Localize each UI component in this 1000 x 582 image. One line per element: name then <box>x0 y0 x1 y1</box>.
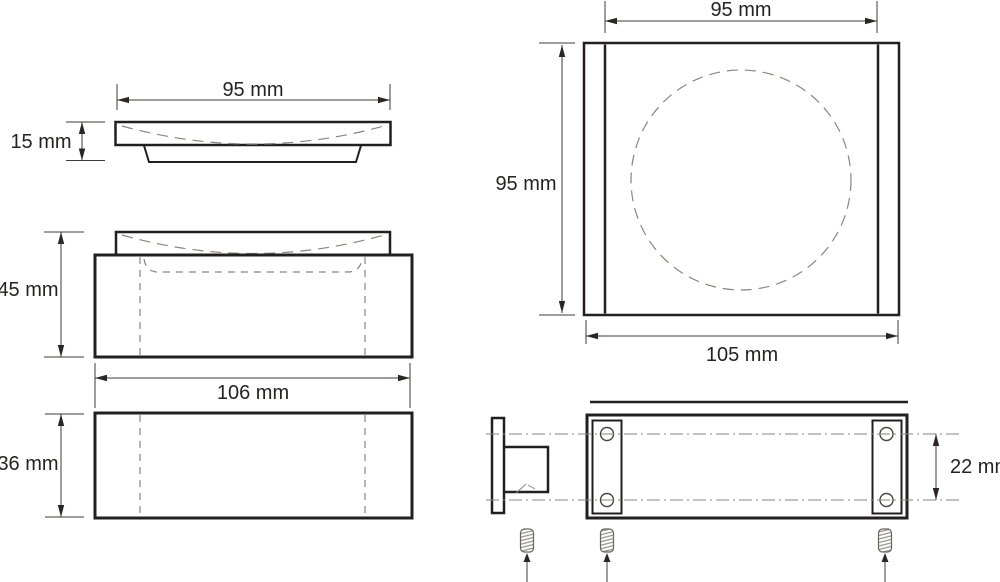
dimension-top-depth: 95 mm <box>495 43 575 315</box>
base-side-view: 36 mm <box>0 413 412 518</box>
drawing-canvas: 95 mm 15 mm 45 mm 106 mm <box>0 0 1000 582</box>
dish-concave-hidden-line <box>122 235 384 254</box>
screw-icon <box>879 529 892 552</box>
dim-label-base-height: 36 mm <box>0 453 59 475</box>
dim-label-top-body-width: 105 mm <box>706 344 778 366</box>
front-view: 45 mm 106 mm <box>0 232 412 408</box>
dimension-hole-spacing: 22 mm <box>936 434 1000 500</box>
bracket-detail-mark <box>528 485 535 489</box>
screw-symbol <box>521 529 534 582</box>
dim-label-top-depth: 95 mm <box>495 173 556 195</box>
mounting-view: 22 mm <box>486 402 1000 582</box>
insert-arrow-head <box>524 553 531 562</box>
dish-profile <box>116 122 391 145</box>
dish-concave-hidden-line <box>122 126 384 144</box>
dim-label-side-height: 15 mm <box>10 131 71 153</box>
bracket-plate <box>492 418 504 513</box>
dimension-side-height: 15 mm <box>10 122 105 161</box>
dimension-base-height: 36 mm <box>0 414 84 517</box>
screw-icon <box>601 529 614 552</box>
insert-arrow-head <box>882 553 889 562</box>
holder-body-bottom <box>587 415 907 518</box>
dimension-top-dish-width: 95 mm <box>605 0 877 33</box>
screw-icon <box>521 529 534 552</box>
dimension-top-body-width: 105 mm <box>586 320 898 366</box>
dimension-front-height: 45 mm <box>0 232 84 357</box>
dim-label-hole-spacing: 22 mm <box>950 456 1000 478</box>
dish-recess-hidden-circle <box>631 70 851 290</box>
dim-label-top-dish-width: 95 mm <box>710 0 771 21</box>
dim-label-front-width: 106 mm <box>217 382 289 404</box>
dimension-front-width: 106 mm <box>95 363 410 408</box>
insert-arrow-head <box>604 553 611 562</box>
dim-label-side-width: 95 mm <box>222 79 283 101</box>
wall-bracket-profile <box>492 418 548 513</box>
dimension-side-width: 95 mm <box>117 79 390 110</box>
screw-symbol <box>879 529 892 582</box>
dish-base-profile <box>144 146 361 163</box>
bracket-hook <box>504 447 548 492</box>
technical-drawing: 95 mm 15 mm 45 mm 106 mm <box>0 0 1000 582</box>
dim-label-front-height: 45 mm <box>0 279 59 301</box>
screw-symbol <box>601 529 614 582</box>
top-view: 95 mm 95 mm 105 mm <box>495 0 899 366</box>
side-view: 95 mm 15 mm <box>10 79 390 162</box>
hidden-recess-line <box>144 259 362 272</box>
